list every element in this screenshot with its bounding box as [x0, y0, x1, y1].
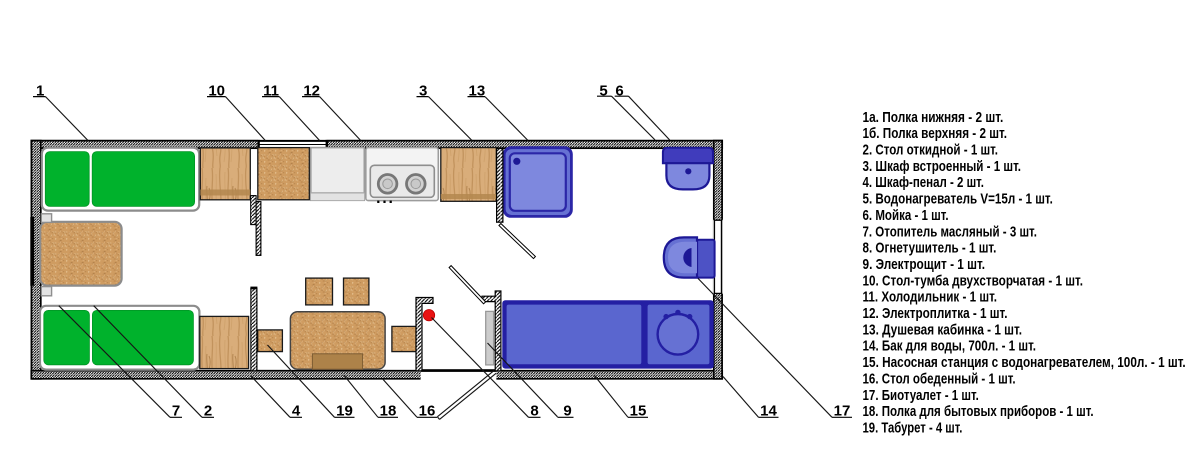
- svg-text:2. Стол откидной - 1 шт.: 2. Стол откидной - 1 шт.: [863, 142, 999, 159]
- svg-text:6. Мойка - 1 шт.: 6. Мойка - 1 шт.: [863, 207, 949, 224]
- svg-text:19. Табурет - 4 шт.: 19. Табурет - 4 шт.: [863, 420, 963, 437]
- svg-text:9. Электрощит - 1 шт.: 9. Электрощит - 1 шт.: [863, 256, 986, 273]
- svg-text:12. Электроплитка - 1 шт.: 12. Электроплитка - 1 шт.: [863, 305, 1008, 322]
- svg-text:5. Водонагреватель V=15л - 1 ш: 5. Водонагреватель V=15л - 1 шт.: [863, 191, 1053, 208]
- svg-text:1а. Полка нижняя - 2 шт.: 1а. Полка нижняя - 2 шт.: [863, 109, 1004, 126]
- svg-text:4. Шкаф-пенал - 2 шт.: 4. Шкаф-пенал - 2 шт.: [863, 174, 985, 191]
- svg-text:16. Стол обеденный - 1 шт.: 16. Стол обеденный - 1 шт.: [863, 370, 1016, 387]
- svg-text:17. Биотуалет - 1 шт.: 17. Биотуалет - 1 шт.: [863, 387, 979, 404]
- svg-text:3. Шкаф встроенный - 1 шт.: 3. Шкаф встроенный - 1 шт.: [863, 158, 1022, 175]
- svg-text:10. Стол-тумба двухстворчатая: 10. Стол-тумба двухстворчатая - 1 шт.: [863, 272, 1084, 289]
- svg-text:8. Огнетушитель - 1 шт.: 8. Огнетушитель - 1 шт.: [863, 240, 997, 257]
- svg-text:11. Холодильник - 1 шт.: 11. Холодильник - 1 шт.: [863, 289, 998, 306]
- svg-text:14. Бак для воды, 700л. - 1 ш: 14. Бак для воды, 700л. - 1 шт.: [863, 338, 1037, 355]
- svg-text:7. Отопитель масляный - 3 шт.: 7. Отопитель масляный - 3 шт.: [863, 223, 1037, 240]
- svg-text:18. Полка для бытовых приборов: 18. Полка для бытовых приборов - 1 шт.: [863, 403, 1094, 420]
- svg-text:15. Насосная станция с водонаг: 15. Насосная станция с водонагревателем,…: [863, 354, 1186, 371]
- svg-text:13. Душевая кабинка - 1 шт.: 13. Душевая кабинка - 1 шт.: [863, 321, 1023, 338]
- svg-text:1б. Полка верхняя - 2 шт.: 1б. Полка верхняя - 2 шт.: [863, 125, 1008, 142]
